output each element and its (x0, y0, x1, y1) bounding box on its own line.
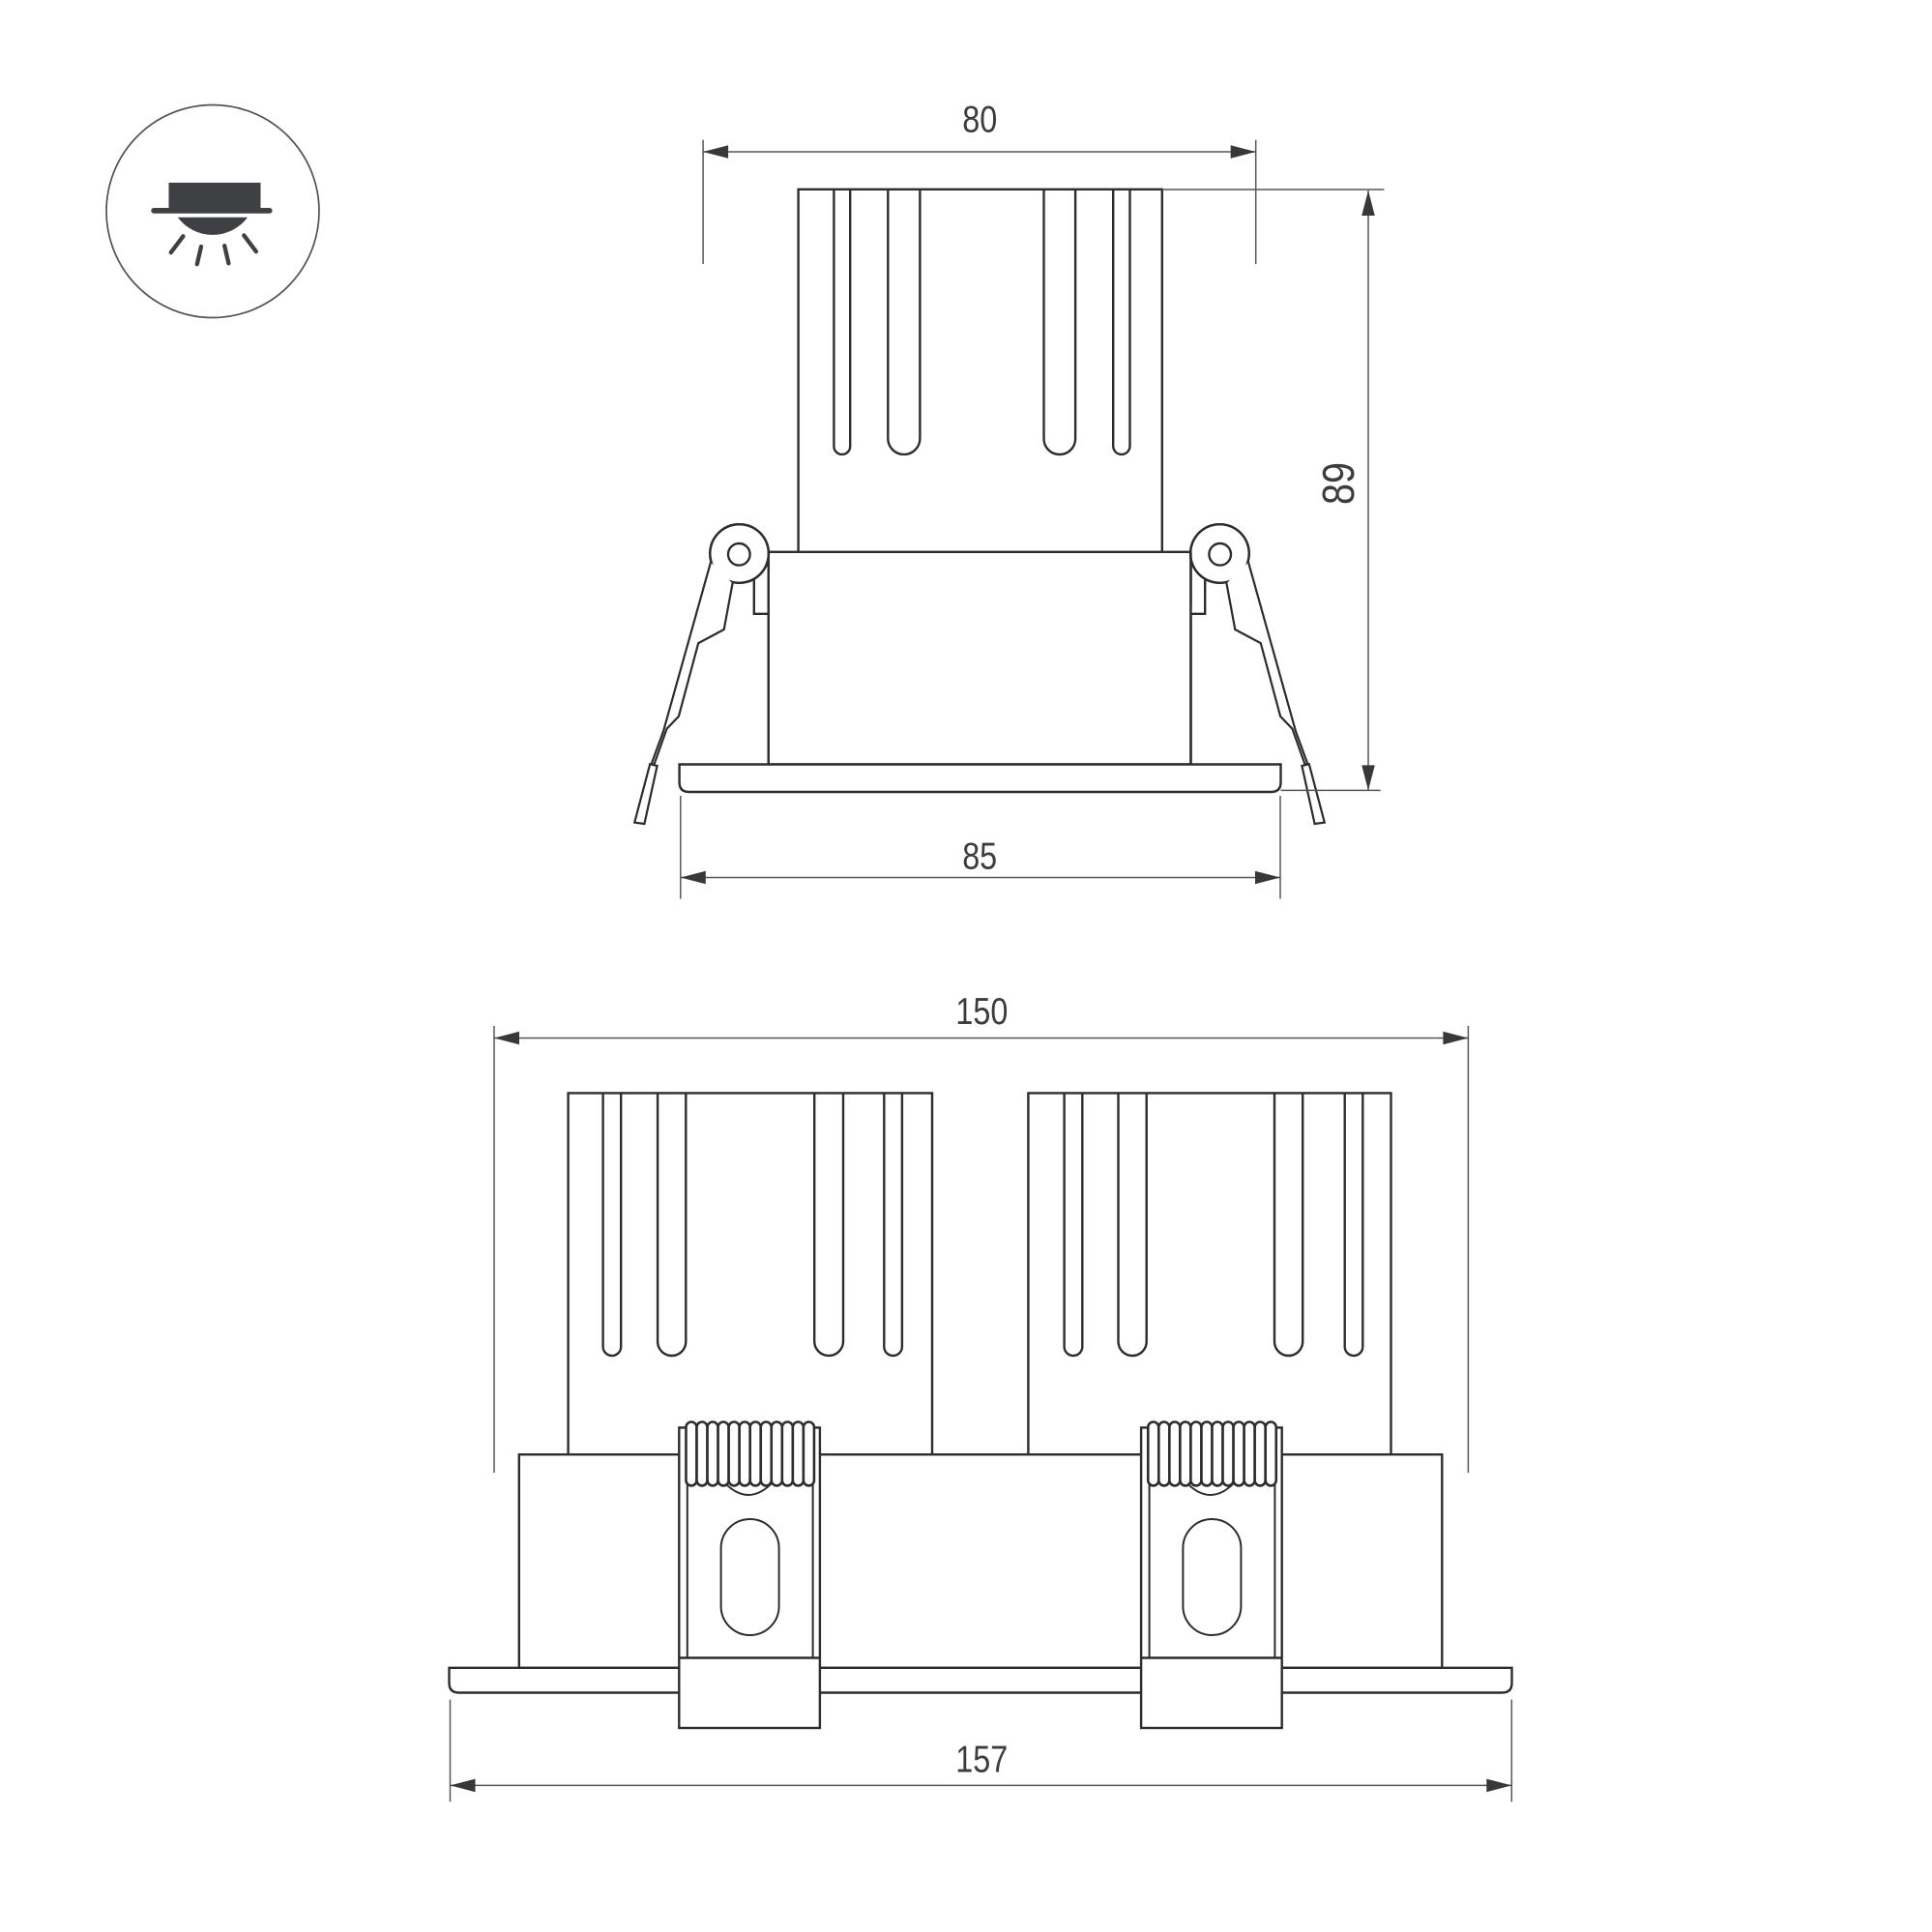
svg-text:89: 89 (1313, 462, 1363, 505)
svg-text:80: 80 (962, 100, 997, 141)
svg-text:85: 85 (962, 835, 997, 877)
svg-text:150: 150 (955, 991, 1008, 1033)
svg-text:157: 157 (955, 1740, 1008, 1781)
